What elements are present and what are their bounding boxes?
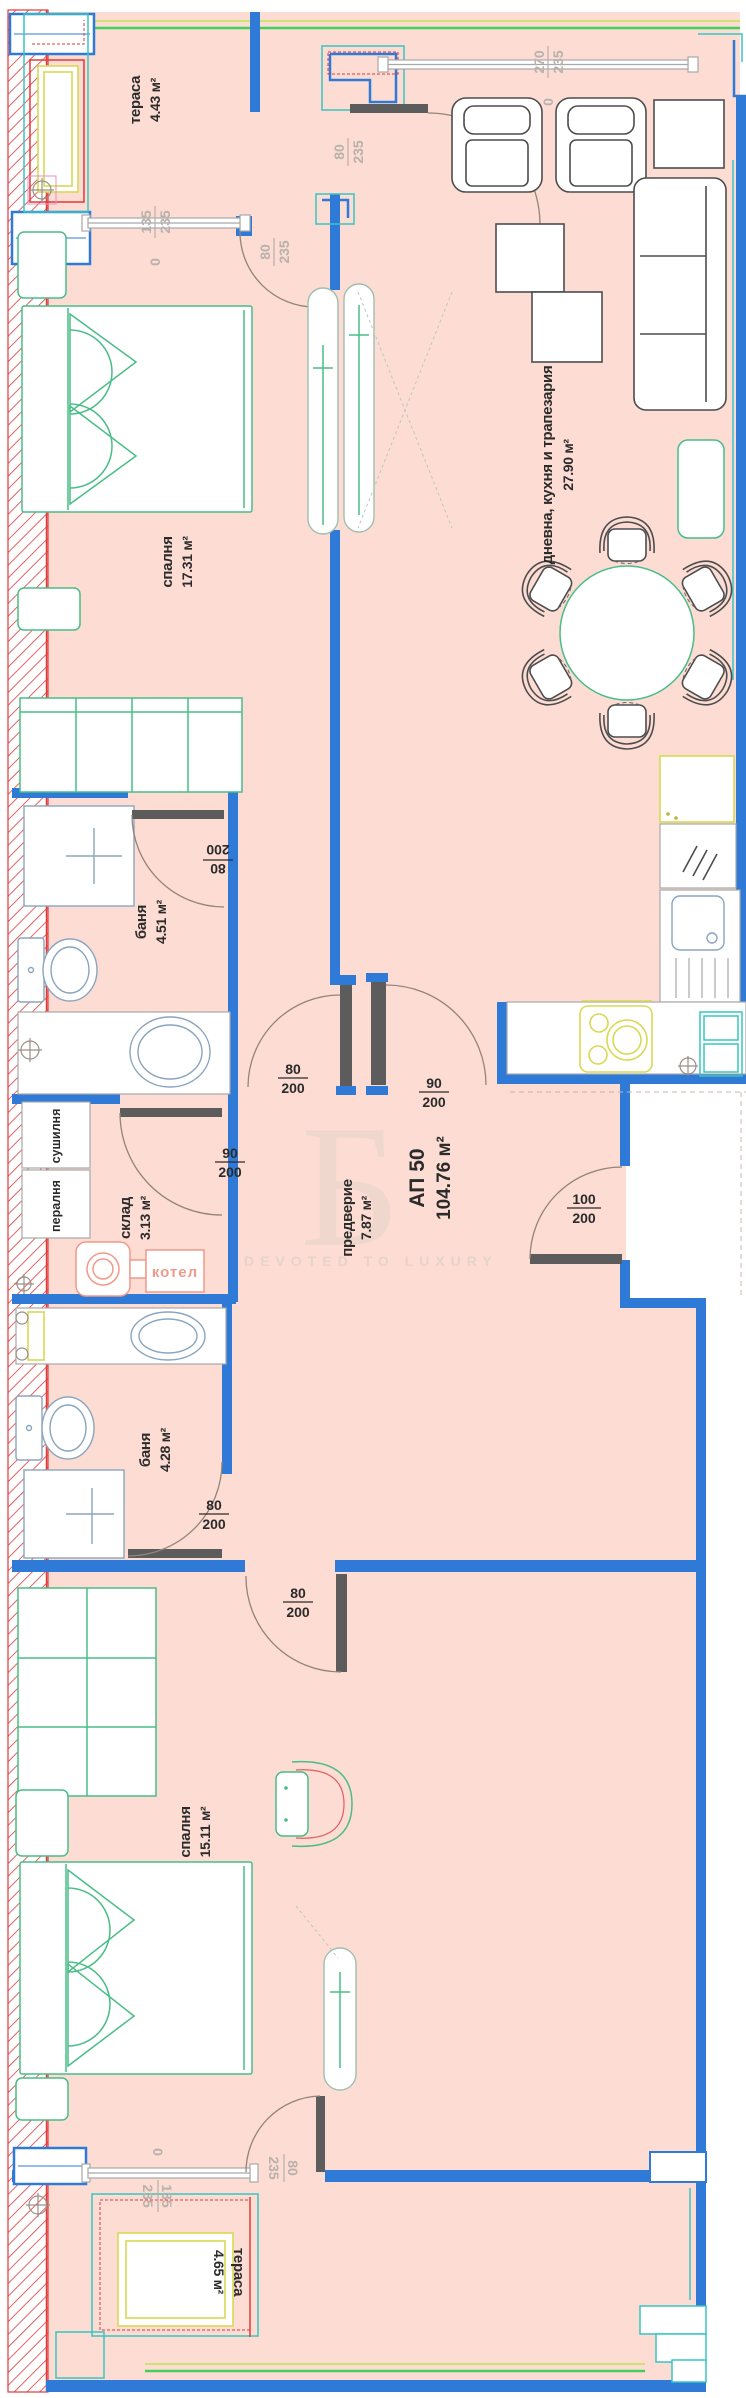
svg-text:80: 80: [210, 861, 226, 877]
svg-text:0: 0: [540, 98, 556, 106]
svg-text:235: 235: [350, 140, 366, 164]
coffee-table-2: [532, 292, 602, 362]
svg-text:АП 50: АП 50: [406, 1148, 429, 1207]
svg-text:4.51 м²: 4.51 м²: [153, 899, 169, 944]
svg-text:4.65 м²: 4.65 м²: [211, 2250, 227, 2295]
svg-text:80: 80: [290, 1585, 306, 1601]
armchair-1: [452, 98, 542, 192]
svg-text:235: 235: [276, 240, 292, 264]
toilet-tank-bath2: [16, 1396, 42, 1460]
svg-text:200: 200: [202, 1516, 226, 1532]
watermark-tagline: DEVOTED TO LUXURY: [244, 1253, 498, 1269]
svg-text:80: 80: [285, 2160, 301, 2176]
tv-cabinet: [654, 100, 724, 168]
bed-double-bedroom1: [22, 306, 252, 512]
door-leaf-storage: [120, 1108, 222, 1117]
dishwasher: [660, 824, 736, 888]
svg-text:235: 235: [266, 2156, 282, 2180]
label-washer: пералня: [49, 1180, 63, 1232]
svg-text:235: 235: [140, 2184, 156, 2208]
dim-zero-terrace-bottom: 0: [150, 2148, 166, 2156]
dim-window-living: 270 235: [531, 46, 566, 78]
svg-text:баня: баня: [133, 905, 150, 939]
door-leaf-entry: [530, 1254, 622, 1264]
door-leaf-bedroom2: [336, 1574, 347, 1672]
svg-text:200: 200: [281, 1080, 305, 1096]
svg-text:предверие: предверие: [339, 1179, 356, 1256]
fridge: [660, 756, 734, 822]
svg-text:135: 135: [138, 210, 154, 234]
dim-window-terrace-top: 135 235: [138, 206, 173, 238]
wardrobe-bedroom2: [18, 1588, 156, 1796]
svg-text:тераса: тераса: [127, 75, 144, 124]
label-dryer: сушилня: [49, 1109, 63, 1164]
svg-text:90: 90: [222, 1145, 238, 1161]
toilet-tank-bath1: [18, 938, 44, 1002]
door-leaf-bath1: [132, 810, 224, 819]
svg-text:пералня: пералня: [49, 1180, 63, 1232]
svg-text:0: 0: [147, 258, 163, 266]
wall-pier-kitchen-door: [371, 982, 386, 1085]
label-boiler: котел: [152, 1264, 198, 1281]
svg-text:80: 80: [206, 1497, 222, 1513]
svg-text:4.28 м²: 4.28 м²: [157, 1427, 173, 1472]
console-green: [678, 440, 724, 538]
svg-text:200: 200: [218, 1164, 242, 1180]
svg-text:80: 80: [285, 1061, 301, 1077]
svg-text:4.43 м²: 4.43 м²: [147, 77, 163, 122]
svg-text:200: 200: [422, 1094, 446, 1110]
door-leaf-terrace-living: [350, 104, 428, 113]
svg-text:тераса: тераса: [230, 2248, 247, 2297]
svg-text:спалня: спалня: [177, 1806, 194, 1857]
svg-text:0: 0: [150, 2148, 166, 2156]
svg-text:сушилня: сушилня: [49, 1109, 63, 1164]
svg-text:27.90 м²: 27.90 м²: [560, 439, 576, 491]
svg-text:200: 200: [206, 842, 230, 858]
counter: [507, 1002, 746, 1074]
svg-text:дневна, кухня и трапезария: дневна, кухня и трапезария: [539, 366, 556, 565]
sofa: [634, 178, 726, 410]
dim-window-terrace-bottom: 135 235: [140, 2180, 175, 2212]
bed-double-bedroom2: [20, 1862, 252, 2074]
door-leaf-terrace2: [316, 2096, 325, 2172]
svg-text:90: 90: [426, 1075, 442, 1091]
armchair-2: [556, 98, 646, 192]
nightstand-bedroom2-bottom: [16, 2078, 68, 2120]
svg-text:104.76 м²: 104.76 м²: [434, 1136, 455, 1220]
svg-text:270: 270: [531, 50, 547, 74]
dim-zero-living: 0: [540, 98, 556, 106]
sink: [672, 896, 724, 950]
svg-text:200: 200: [286, 1604, 310, 1620]
door-leaf-bath2: [128, 1549, 222, 1558]
nightstand-bedroom2-top: [16, 1790, 68, 1856]
svg-text:баня: баня: [137, 1433, 154, 1467]
svg-text:3.13 м²: 3.13 м²: [137, 1195, 153, 1240]
svg-text:235: 235: [157, 210, 173, 234]
floor-plan: Б DEVOTED TO LUXURY тераса 4.43 м² спалн…: [0, 0, 746, 2398]
svg-text:200: 200: [572, 1210, 596, 1226]
svg-text:склад: склад: [117, 1196, 134, 1239]
wardrobe-bedroom1: [20, 698, 242, 792]
dining-table: [560, 566, 694, 700]
nightstand-bedroom1-top: [18, 232, 66, 298]
svg-text:15.11 м²: 15.11 м²: [197, 1806, 213, 1857]
coffee-table-1: [496, 224, 564, 292]
svg-text:100: 100: [572, 1191, 596, 1207]
svg-text:235: 235: [550, 50, 566, 74]
dim-zero-terrace-top: 0: [147, 258, 163, 266]
svg-text:135: 135: [159, 2184, 175, 2208]
door-leaf-hall-corridor: [340, 985, 352, 1086]
bathtub: [130, 1017, 210, 1087]
svg-text:80: 80: [331, 144, 347, 160]
svg-text:7.87 м²: 7.87 м²: [358, 1195, 374, 1240]
nightstand-bedroom1-bottom: [18, 588, 80, 630]
svg-text:спалня: спалня: [159, 536, 176, 587]
svg-text:17.31 м²: 17.31 м²: [179, 536, 195, 588]
svg-text:80: 80: [257, 244, 273, 260]
